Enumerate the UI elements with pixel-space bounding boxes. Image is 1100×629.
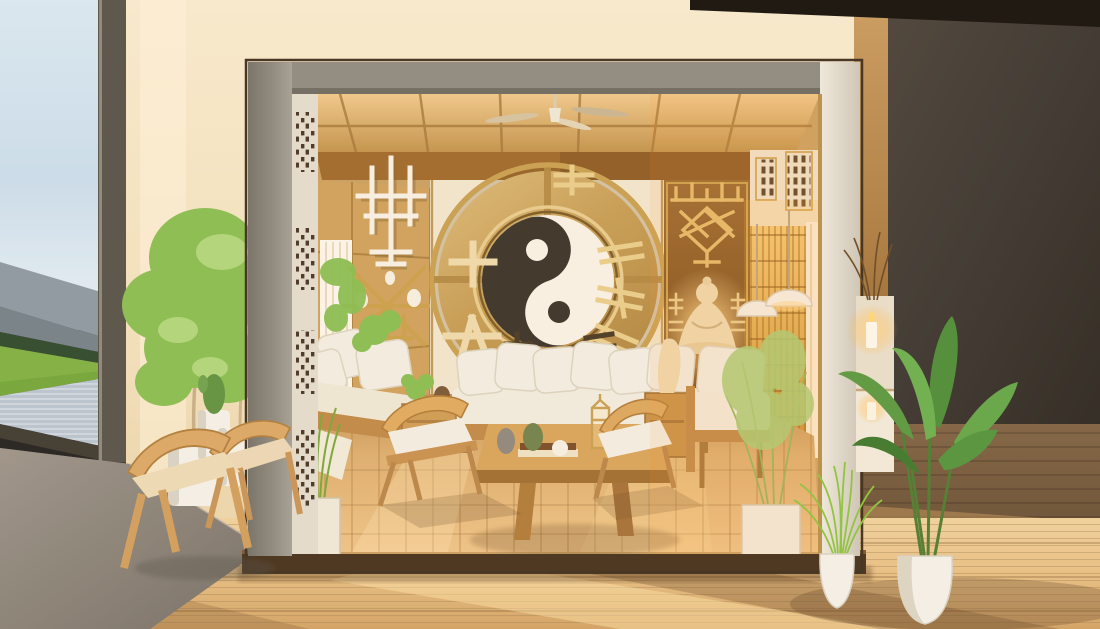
- scene: [0, 0, 1100, 629]
- warm-ambient: [0, 0, 1100, 629]
